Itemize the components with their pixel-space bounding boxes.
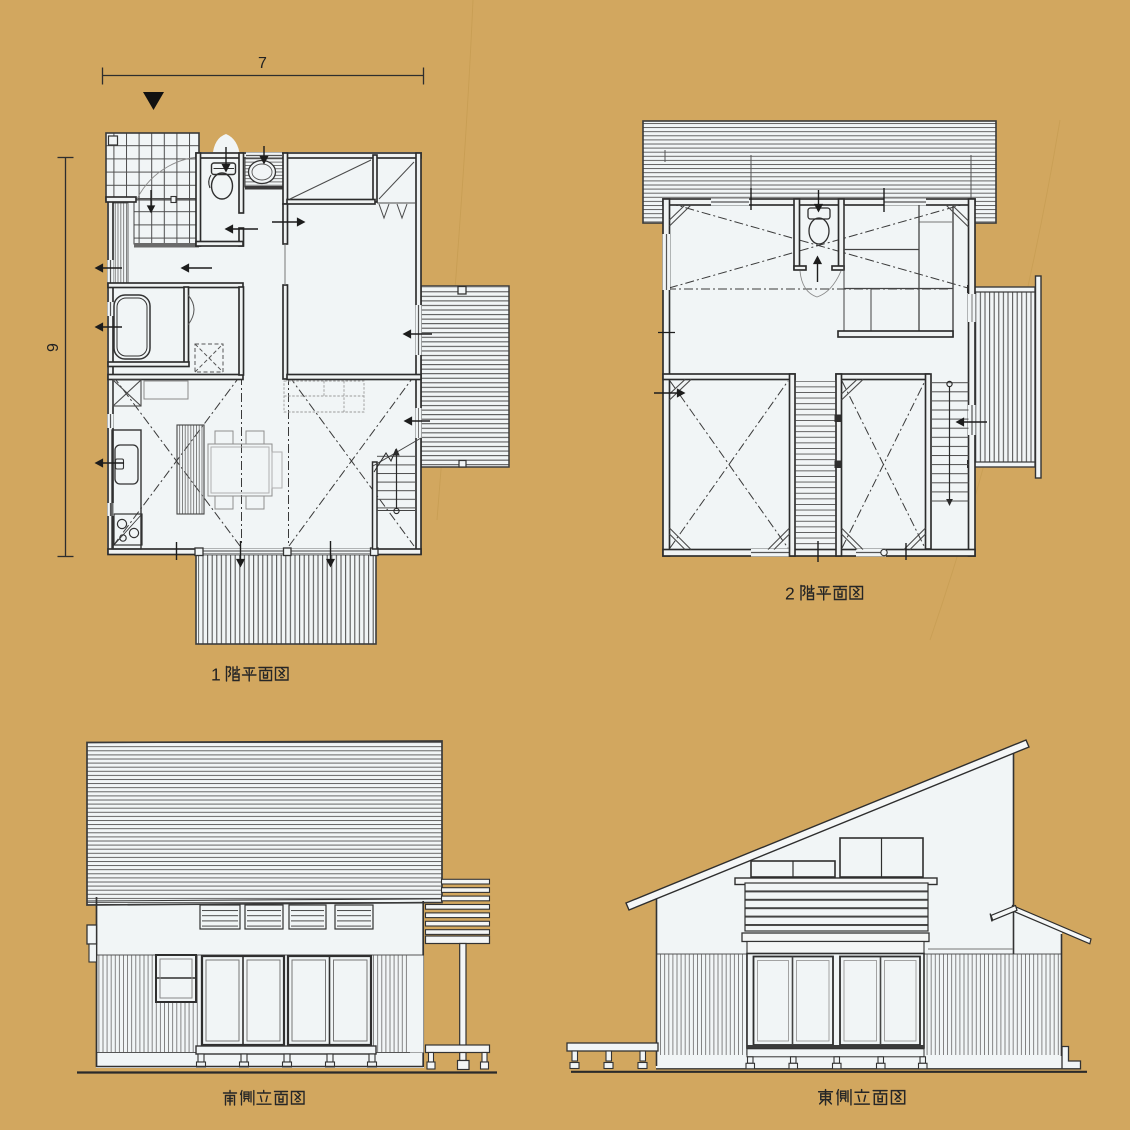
svg-text:1: 1 bbox=[211, 665, 221, 685]
svg-text:9: 9 bbox=[45, 343, 62, 352]
svg-text:2: 2 bbox=[785, 584, 795, 604]
svg-text:7: 7 bbox=[258, 55, 267, 72]
